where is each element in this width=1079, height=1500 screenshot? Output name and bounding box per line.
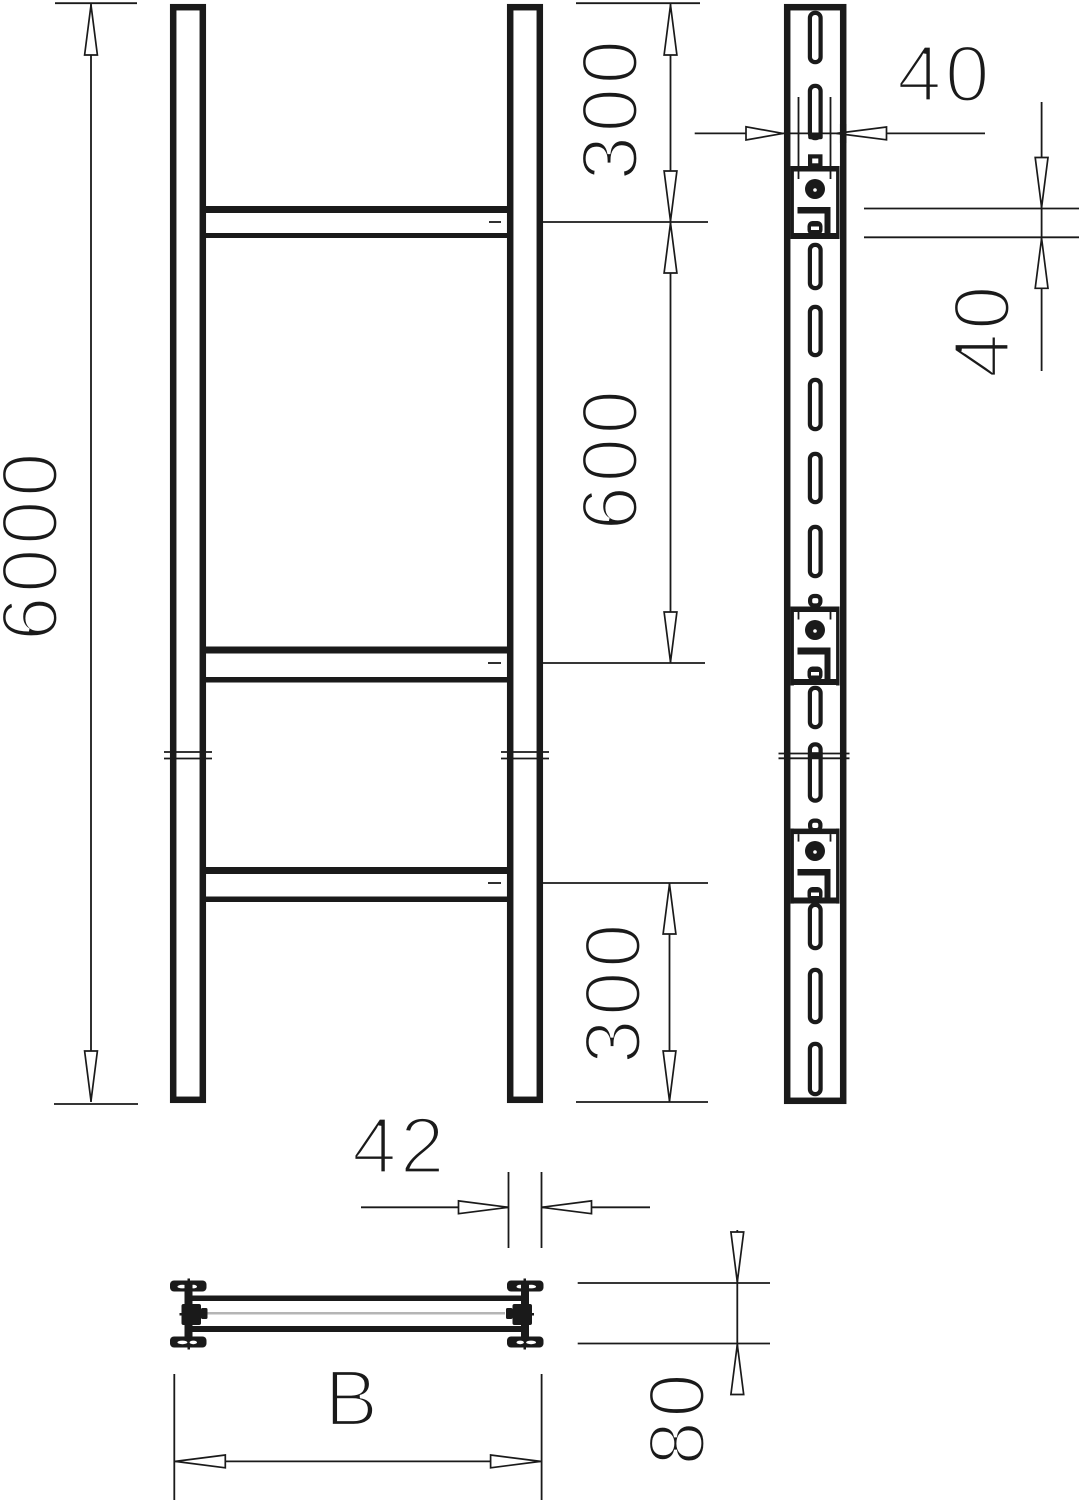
svg-text:B: B (325, 1353, 382, 1442)
svg-text:80: 80 (632, 1370, 721, 1466)
svg-text:40: 40 (897, 29, 993, 118)
svg-text:6000: 6000 (0, 449, 74, 641)
svg-text:42: 42 (352, 1101, 448, 1190)
svg-text:600: 600 (565, 387, 654, 531)
svg-text:300: 300 (568, 920, 657, 1064)
svg-text:300: 300 (565, 37, 654, 181)
svg-text:40: 40 (937, 282, 1026, 378)
